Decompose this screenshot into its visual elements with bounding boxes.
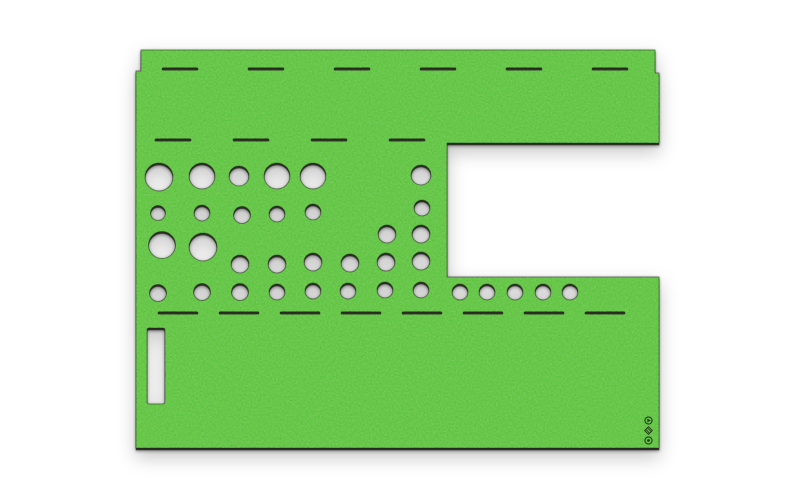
felt-sheet [0,0,800,498]
product-photo [0,0,800,498]
ring-dot-icon [647,439,650,442]
felt-texture [0,0,800,498]
felt-sheet-scene [0,0,800,498]
